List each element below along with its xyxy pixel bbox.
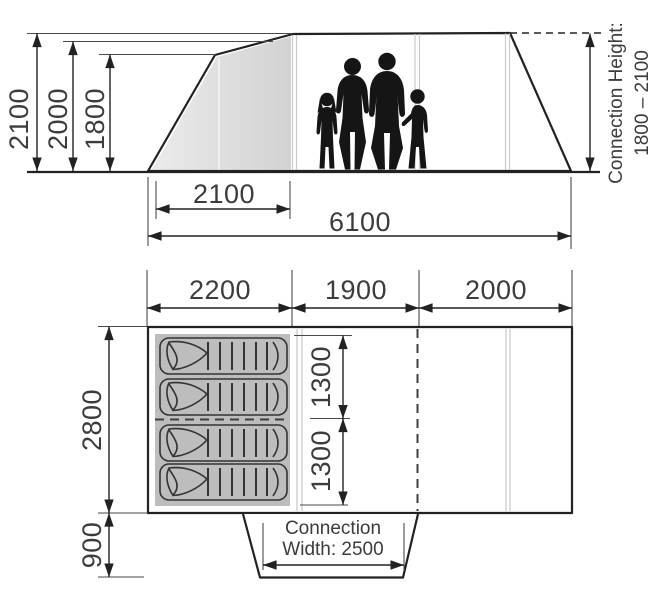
dim-label-tunnel-depth: 900 bbox=[77, 522, 107, 569]
connection-width-value: Width: 2500 bbox=[282, 539, 383, 560]
tent-dimensions-diagram: 2100 2000 1800 2100 6100 Connection Heig… bbox=[0, 0, 668, 600]
connection-height-range: 1800 – 2100 bbox=[632, 50, 653, 156]
connection-height-title: Connection Height: bbox=[606, 22, 627, 184]
dim-label-total-length: 6100 bbox=[329, 207, 391, 237]
dim-label-berth-1300-a: 1300 bbox=[306, 346, 336, 408]
diagram-canvas: 2100 2000 1800 2100 6100 Connection Heig… bbox=[0, 0, 668, 600]
dim-label-section-2000: 2000 bbox=[465, 275, 527, 305]
dim-label-section-1900: 1900 bbox=[325, 275, 387, 305]
dim-label-porch-width: 2100 bbox=[193, 179, 255, 209]
porch-shaded-panel bbox=[152, 37, 291, 170]
dim-label-height-1800: 1800 bbox=[80, 88, 110, 150]
connection-width-title: Connection bbox=[285, 518, 381, 539]
dim-label-berth-1300-b: 1300 bbox=[306, 430, 336, 492]
dim-label-section-2200: 2200 bbox=[189, 275, 251, 305]
dim-label-height-2100: 2100 bbox=[4, 88, 34, 150]
dim-label-inner-width: 2800 bbox=[77, 389, 107, 451]
side-view: 2100 2000 1800 2100 6100 Connection Heig… bbox=[4, 22, 653, 249]
dim-label-height-2000: 2000 bbox=[43, 88, 73, 150]
floor-plan: 2200 1900 2000 2800 900 1300 1300 Connec… bbox=[77, 270, 572, 578]
